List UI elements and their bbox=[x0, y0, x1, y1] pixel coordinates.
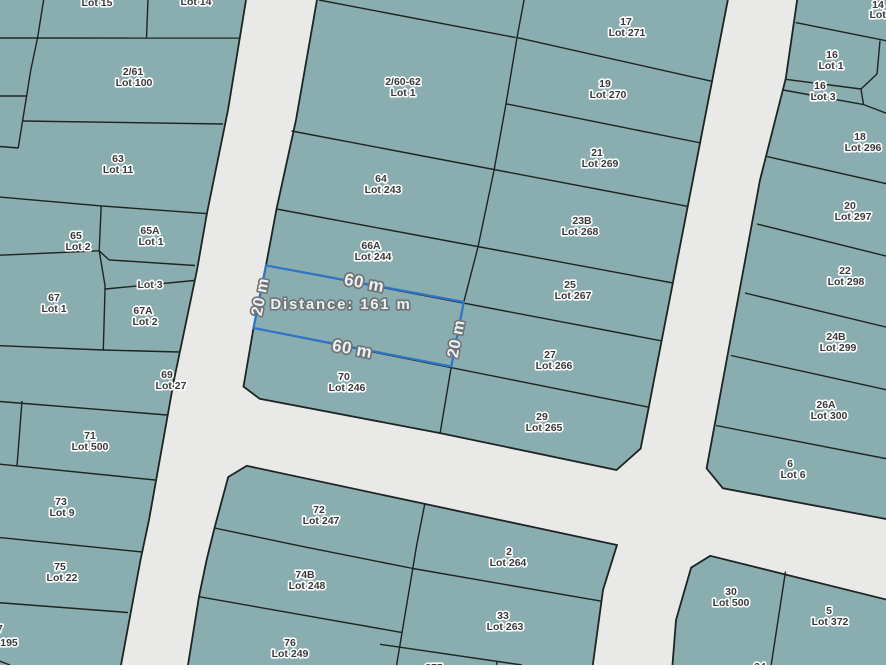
svg-text:Lot 27: Lot 27 bbox=[156, 380, 187, 392]
svg-text:Lot 271: Lot 271 bbox=[609, 27, 646, 39]
svg-text:Lot 296: Lot 296 bbox=[845, 142, 882, 154]
svg-text:Lot 265: Lot 265 bbox=[526, 422, 563, 434]
svg-text:Lot 1: Lot 1 bbox=[41, 303, 66, 315]
svg-text:Lot 264: Lot 264 bbox=[490, 557, 527, 569]
svg-text:Lot 500: Lot 500 bbox=[72, 441, 109, 453]
svg-text:Lot 500: Lot 500 bbox=[713, 597, 750, 609]
svg-text:Lot 249: Lot 249 bbox=[272, 648, 309, 660]
svg-text:Lot 248: Lot 248 bbox=[289, 580, 326, 592]
svg-text:77: 77 bbox=[0, 623, 3, 635]
svg-text:Lot 9: Lot 9 bbox=[49, 507, 74, 519]
svg-text:Lot 270: Lot 270 bbox=[590, 89, 627, 101]
svg-text:Lot 100: Lot 100 bbox=[116, 77, 153, 89]
svg-text:Lot 3: Lot 3 bbox=[137, 279, 162, 291]
svg-text:Lot 2: Lot 2 bbox=[869, 9, 886, 21]
svg-text:Lot 300: Lot 300 bbox=[811, 410, 848, 422]
svg-text:Lot 15: Lot 15 bbox=[82, 0, 113, 9]
svg-text:Lot 22: Lot 22 bbox=[47, 572, 78, 584]
svg-text:Lot 246: Lot 246 bbox=[329, 382, 366, 394]
svg-text:Lot 267: Lot 267 bbox=[555, 290, 592, 302]
svg-text:Lot 6: Lot 6 bbox=[780, 469, 805, 481]
svg-text:Lot 243: Lot 243 bbox=[365, 184, 402, 196]
svg-text:Lot 3: Lot 3 bbox=[810, 91, 835, 103]
svg-text:Lot 269: Lot 269 bbox=[582, 158, 619, 170]
svg-text:Lot 263: Lot 263 bbox=[487, 621, 524, 633]
svg-text:Lot 268: Lot 268 bbox=[562, 226, 599, 238]
svg-text:Lot 244: Lot 244 bbox=[355, 251, 392, 263]
svg-text:Lot 298: Lot 298 bbox=[828, 276, 865, 288]
svg-text:Lot 266: Lot 266 bbox=[536, 360, 573, 372]
svg-text:Lot 2: Lot 2 bbox=[132, 316, 157, 328]
svg-text:Lot 1: Lot 1 bbox=[390, 87, 415, 99]
svg-text:Lot 14: Lot 14 bbox=[181, 0, 212, 8]
svg-text:Lot 11: Lot 11 bbox=[103, 164, 134, 176]
svg-text:34: 34 bbox=[754, 661, 766, 665]
svg-text:Distance: 161 m: Distance: 161 m bbox=[270, 296, 411, 313]
svg-text:Lot 1: Lot 1 bbox=[138, 236, 163, 248]
svg-text:Lot 299: Lot 299 bbox=[820, 342, 857, 354]
svg-text:Lot 2: Lot 2 bbox=[65, 241, 90, 253]
svg-text:Lot 372: Lot 372 bbox=[812, 616, 849, 628]
svg-text:195: 195 bbox=[0, 637, 18, 649]
svg-text:Lot 247: Lot 247 bbox=[303, 515, 340, 527]
svg-text:Lot 297: Lot 297 bbox=[835, 211, 872, 223]
svg-text:Lot 1: Lot 1 bbox=[818, 60, 843, 72]
